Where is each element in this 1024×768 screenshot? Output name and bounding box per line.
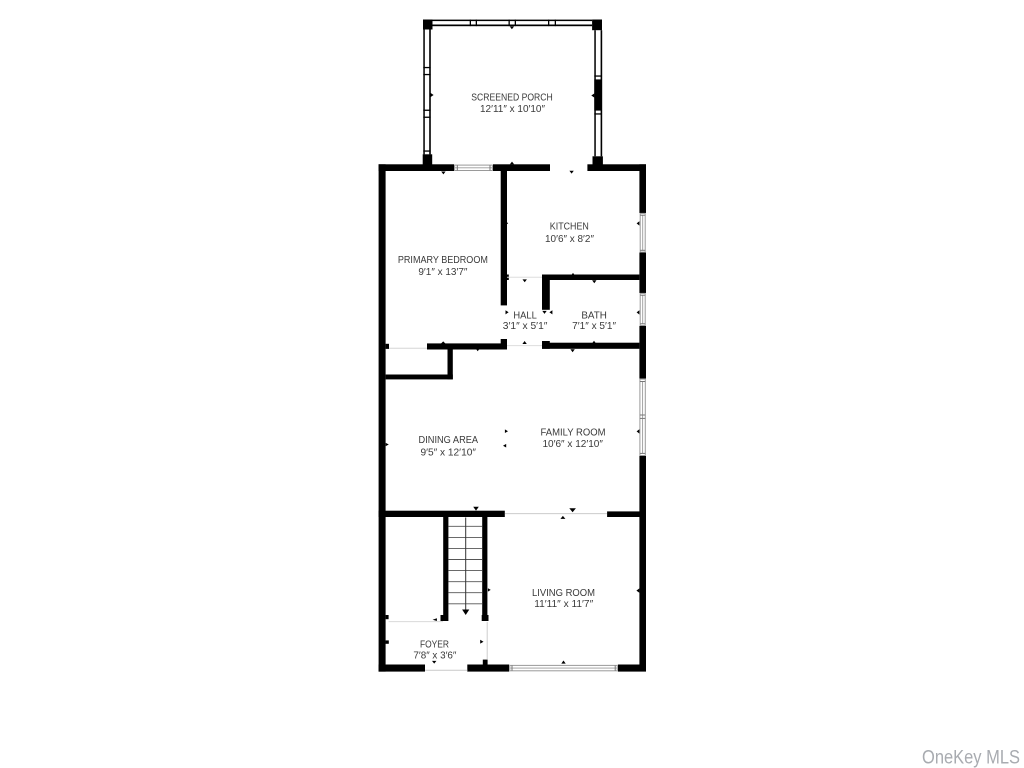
svg-text:11′11″ x 11′7″: 11′11″ x 11′7″ bbox=[534, 599, 593, 610]
svg-text:7′1″ x 5′1″: 7′1″ x 5′1″ bbox=[572, 321, 616, 332]
svg-text:3′1″ x 5′1″: 3′1″ x 5′1″ bbox=[503, 321, 548, 332]
svg-text:DINING AREA: DINING AREA bbox=[419, 435, 479, 446]
svg-text:FAMILY ROOM: FAMILY ROOM bbox=[541, 428, 606, 439]
svg-text:KITCHEN: KITCHEN bbox=[550, 222, 589, 233]
svg-text:FOYER: FOYER bbox=[420, 640, 449, 651]
svg-text:SCREENED PORCH: SCREENED PORCH bbox=[471, 92, 553, 103]
svg-text:10′6″ x 8′2″: 10′6″ x 8′2″ bbox=[545, 234, 594, 245]
svg-text:9′1″ x 13′7″: 9′1″ x 13′7″ bbox=[418, 267, 467, 278]
svg-text:7′8″ x 3′6″: 7′8″ x 3′6″ bbox=[413, 651, 456, 662]
svg-text:PRIMARY BEDROOM: PRIMARY BEDROOM bbox=[398, 255, 488, 266]
svg-text:10′6″ x 12′10″: 10′6″ x 12′10″ bbox=[542, 439, 603, 450]
svg-text:OneKey MLS: OneKey MLS bbox=[922, 747, 1020, 768]
svg-text:LIVING ROOM: LIVING ROOM bbox=[532, 588, 595, 599]
svg-text:9′5″ x 12′10″: 9′5″ x 12′10″ bbox=[420, 447, 476, 458]
svg-text:12′11″ x 10′10″: 12′11″ x 10′10″ bbox=[480, 104, 545, 115]
